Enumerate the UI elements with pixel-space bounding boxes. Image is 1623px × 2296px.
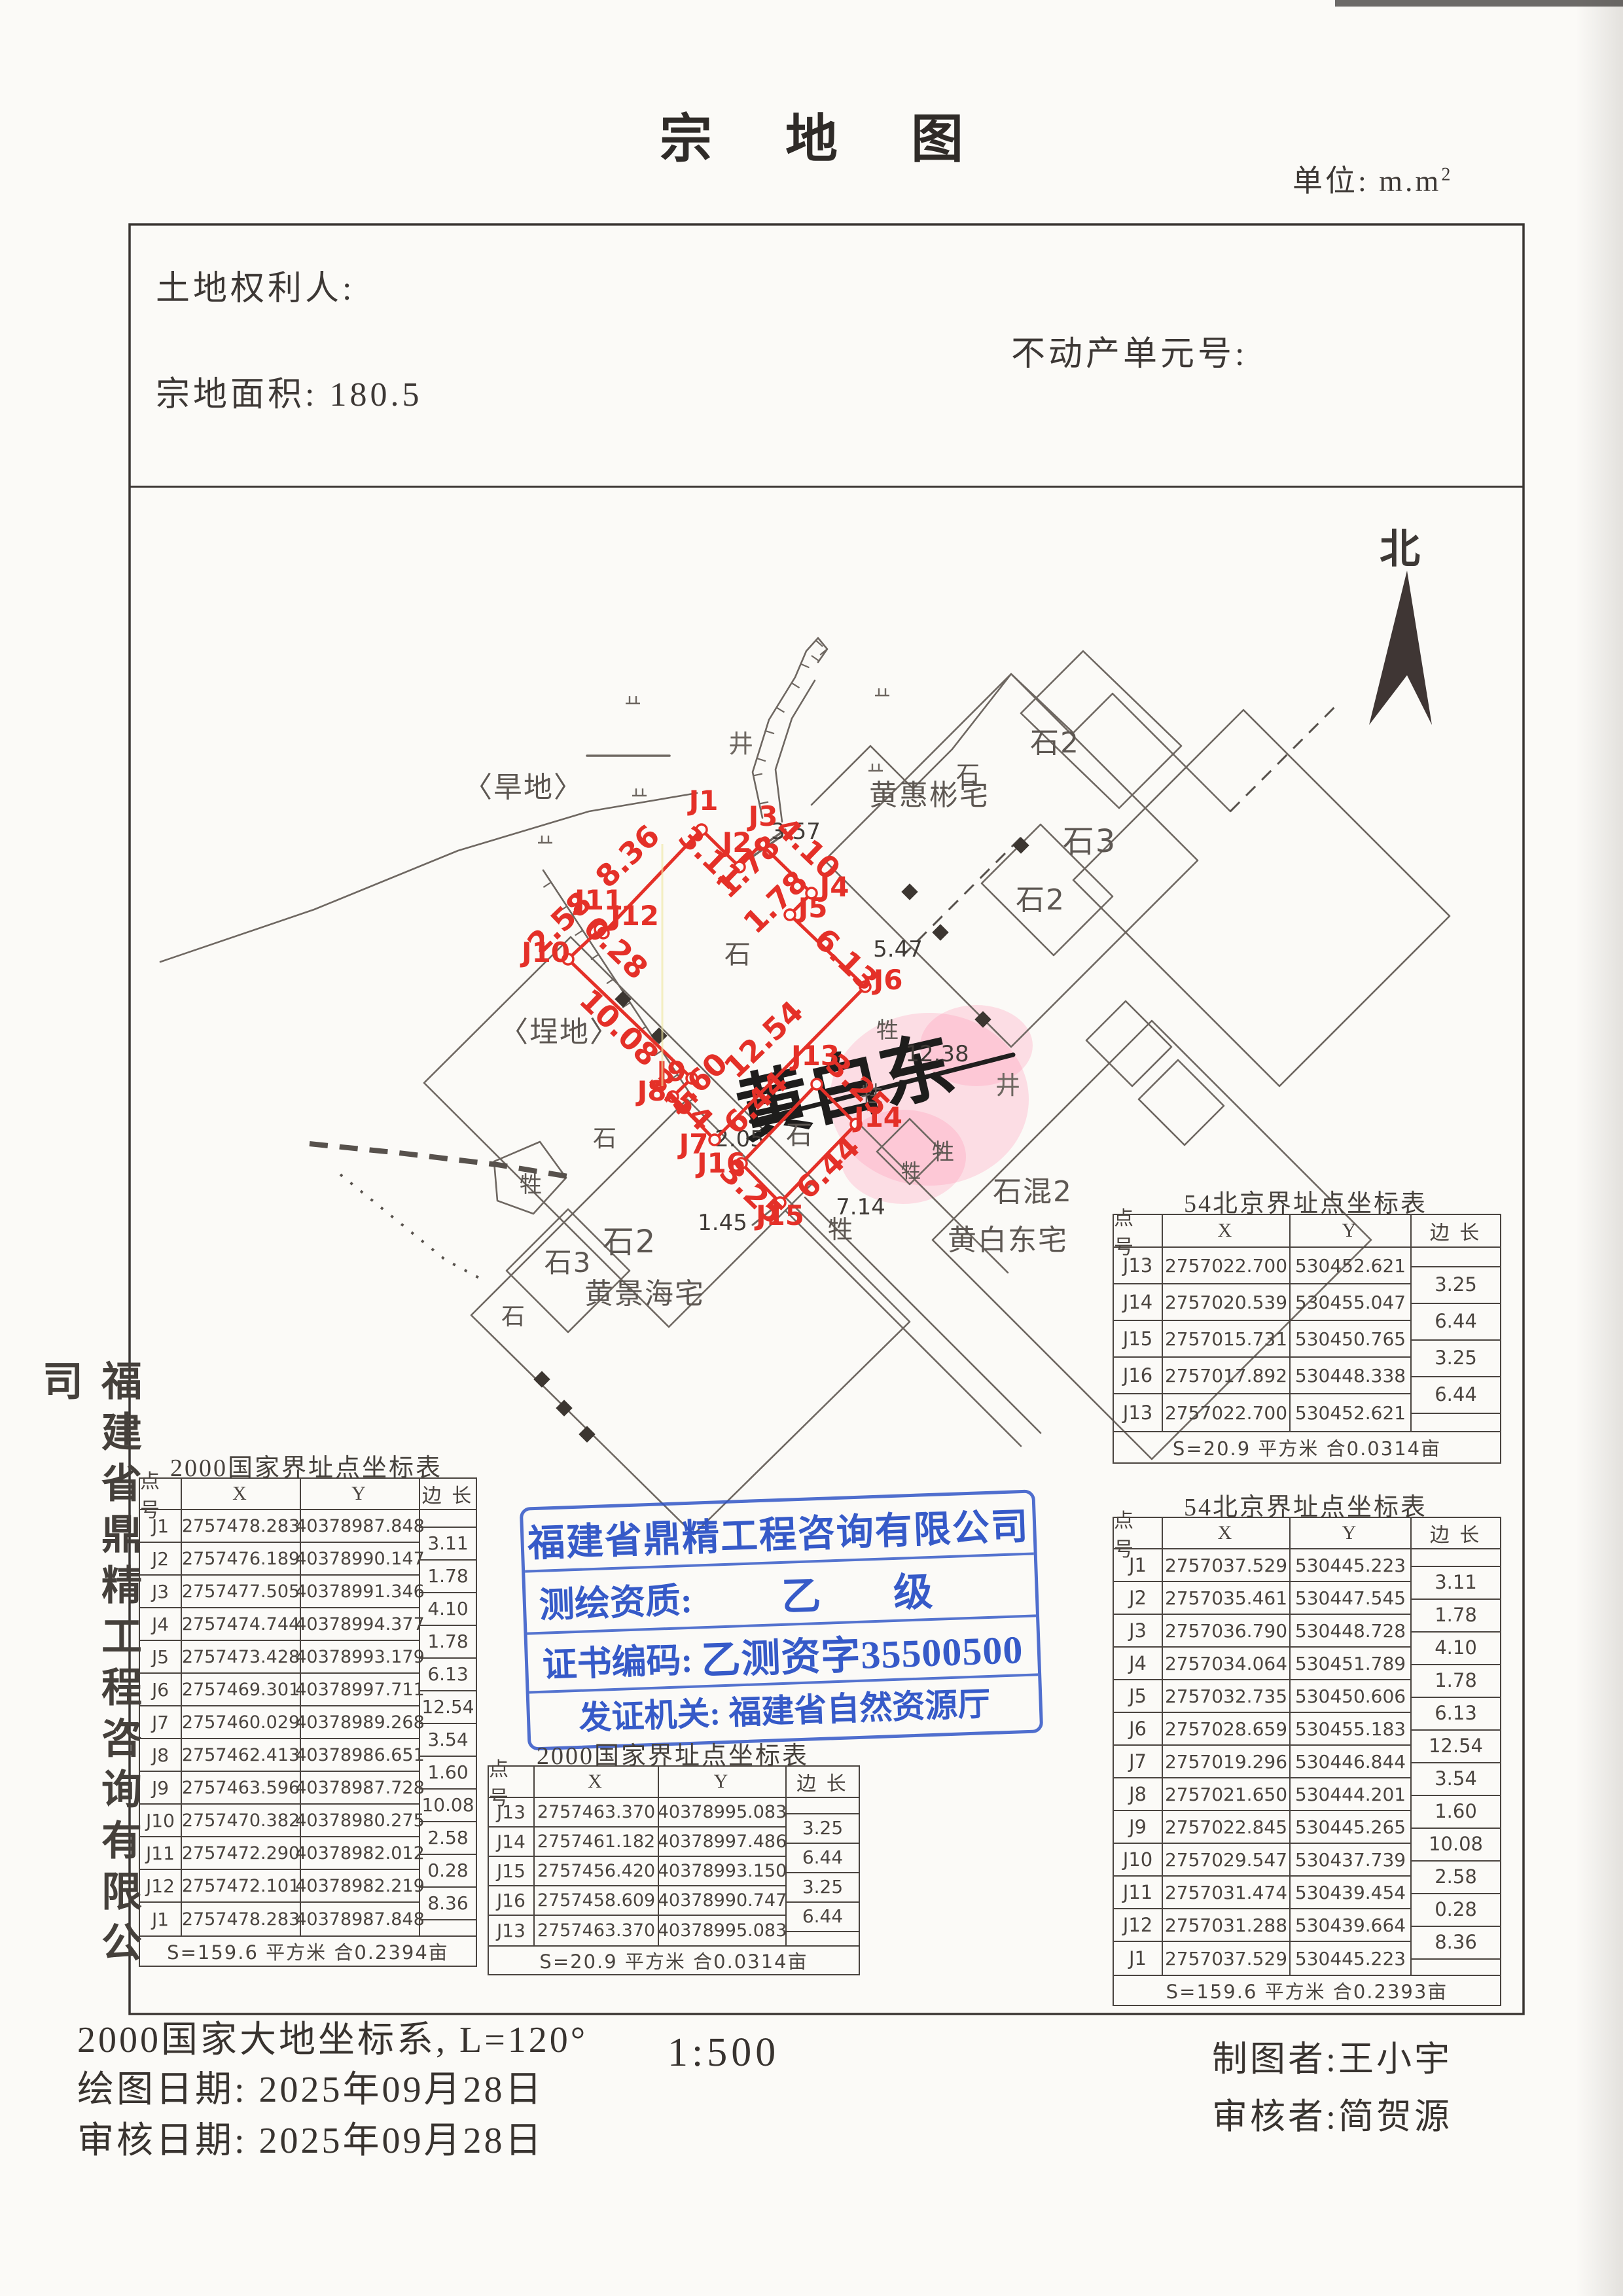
table-cell: J1: [1114, 1942, 1163, 1975]
dashed-path: [1230, 707, 1335, 811]
well-symbol: 井: [995, 1071, 1020, 1100]
table-header-cell: 边 长: [787, 1767, 859, 1798]
table-cell: 530445.265: [1291, 1811, 1412, 1844]
table-cell: 2757028.659: [1163, 1713, 1291, 1746]
edge-length-cell: 6.44: [1412, 1376, 1500, 1413]
table-cell: J5: [140, 1641, 182, 1674]
table-cell: 40378990.747: [659, 1886, 787, 1916]
table-cell: 530448.338: [1291, 1358, 1412, 1394]
table-cell: 530444.201: [1291, 1778, 1412, 1811]
table-cell: 2757022.845: [1163, 1811, 1291, 1844]
distance-annotation: 7.14: [836, 1194, 885, 1220]
table-cell: 2757034.064: [1163, 1648, 1291, 1680]
building-outline: [753, 638, 827, 818]
table-cell: 40378997.486: [659, 1828, 787, 1857]
map-label: 石: [593, 1125, 618, 1152]
table-cell: 2757461.182: [535, 1828, 659, 1857]
edge-length-cell: 0.28: [420, 1854, 476, 1886]
table-header-cell: 边 长: [1412, 1518, 1500, 1549]
table-cell: J2: [140, 1543, 182, 1576]
hatch-tick: [792, 683, 800, 688]
edge-length-divider: [1412, 1958, 1500, 1960]
hatch-tick: [766, 731, 774, 733]
table-cell: J14: [1114, 1284, 1163, 1321]
footer-crs: 2000国家大地坐标系, L=120°: [77, 2010, 588, 2063]
map-label: 石3: [544, 1246, 592, 1279]
pole-diamond-mark: [932, 924, 948, 940]
building-outline: [1139, 1060, 1224, 1145]
map-label: 石2: [1030, 726, 1080, 760]
table-cell: J8: [1114, 1778, 1163, 1811]
hatch-tick: [811, 656, 819, 661]
map-label: 牲: [901, 1160, 922, 1183]
table-cell: 530452.621: [1291, 1248, 1412, 1284]
building-outline: [776, 680, 815, 822]
table-header-cell: 边 长: [420, 1479, 476, 1510]
table-cell: J2: [1114, 1582, 1163, 1615]
edge-length-cell: 3.11: [420, 1527, 476, 1559]
text-fragment: 测绘资质:: [538, 1571, 693, 1628]
hatch-tick: [607, 978, 615, 983]
table-cell: 40378997.711: [301, 1674, 420, 1706]
table-cell: J4: [140, 1608, 182, 1641]
scanned-parcel-map-page: 井井黄白东〈旱地〉〈埕地〉石黄惠彬宅石2石3石2石石石石2石3黄景海宅石石混2黄…: [0, 0, 1623, 2296]
table-cell: 40378982.219: [301, 1870, 420, 1903]
table-cell: J12: [140, 1870, 182, 1903]
table-cell: 2757021.650: [1163, 1778, 1291, 1811]
edge-length-cell: 1.60: [420, 1756, 476, 1788]
table-header-cell: Y: [659, 1767, 787, 1798]
table-header-cell: Y: [301, 1479, 420, 1510]
parcel-edge-length: 8.36: [588, 818, 666, 895]
table-cell: J15: [1114, 1321, 1163, 1358]
table-cell: 2757035.461: [1163, 1582, 1291, 1615]
table-cell: 530452.621: [1291, 1394, 1412, 1431]
table-cell: 40378987.728: [301, 1772, 420, 1805]
unit-note: 单位: m.m2: [1293, 157, 1453, 200]
table-header-cell: Y: [1291, 1215, 1412, 1248]
table-cell: J7: [140, 1706, 182, 1739]
map-label: 石: [786, 1120, 813, 1150]
boundary-point-marker: [811, 1079, 822, 1089]
table-cell: J15: [489, 1857, 535, 1886]
table-cell: J9: [1114, 1811, 1163, 1844]
table-cell: 2757458.609: [535, 1886, 659, 1916]
text-fragment: 乙测资字35500500: [700, 1617, 1024, 1686]
table-header-cell: 点 号: [1114, 1518, 1163, 1549]
table-cell: J6: [140, 1674, 182, 1706]
table-cell: J13: [1114, 1394, 1163, 1431]
table-cell: 40378993.150: [659, 1857, 787, 1886]
edge-length-cell: 2.58: [420, 1821, 476, 1854]
map-label: 石2: [603, 1224, 657, 1260]
table-cell: J3: [140, 1576, 182, 1608]
table-cell: J1: [140, 1510, 182, 1543]
table-cell: 2757469.301: [182, 1674, 301, 1706]
hatch-tick: [801, 664, 810, 667]
table-summary: S=159.6 平方米 合0.2394亩: [140, 1935, 476, 1966]
table-summary: S=159.6 平方米 合0.2393亩: [1114, 1975, 1500, 2005]
hatch-tick: [753, 774, 762, 776]
edge-length-cell: 1.78: [1412, 1664, 1500, 1697]
edge-length-cell: 3.25: [1412, 1266, 1500, 1303]
text-fragment: 2: [1441, 165, 1453, 185]
edge-length-cell: 6.44: [1412, 1303, 1500, 1339]
building-outline: [1073, 710, 1450, 1086]
table-cell: J9: [140, 1772, 182, 1805]
table-cell: 40378987.848: [301, 1510, 420, 1543]
table-header-cell: X: [535, 1767, 659, 1798]
hatch-tick: [777, 707, 785, 712]
table-t2000_main: 点 号XY边 长J12757478.28340378987.848J227574…: [139, 1477, 477, 1967]
table-cell: J10: [1114, 1844, 1163, 1877]
edge-length-cell: 1.78: [420, 1625, 476, 1657]
table-cell: 2757456.420: [535, 1857, 659, 1886]
table-cell: 2757470.382: [182, 1805, 301, 1837]
table-cell: 530445.223: [1291, 1942, 1412, 1975]
table-cell: 2757037.529: [1163, 1549, 1291, 1582]
table-cell: 2757031.288: [1163, 1909, 1291, 1942]
table-header-cell: 点 号: [489, 1767, 535, 1798]
ground-symbol: [632, 788, 647, 796]
land-owner-label: 土地权利人:: [156, 260, 355, 309]
text-fragment: 单位: m.m: [1293, 164, 1441, 198]
table-cell: 2757029.547: [1163, 1844, 1291, 1877]
table-cell: 2757473.428: [182, 1641, 301, 1674]
table-cell: 40378995.083: [659, 1798, 787, 1828]
table-cell: 2757037.529: [1163, 1942, 1291, 1975]
table-header-cell: 边 长: [1412, 1215, 1500, 1248]
table-cell: J10: [140, 1805, 182, 1837]
table-cell: 2757460.029: [182, 1706, 301, 1739]
table-header-cell: 点 号: [1114, 1215, 1163, 1248]
table-cell: 2757463.370: [535, 1798, 659, 1828]
table-header-cell: X: [1163, 1518, 1291, 1549]
edge-length-cell: 12.54: [1412, 1729, 1500, 1762]
pole-diamond-mark: [533, 1371, 550, 1387]
table-cell: J13: [1114, 1248, 1163, 1284]
well-symbol: 井: [728, 730, 753, 758]
edge-length-cell: 3.54: [420, 1723, 476, 1756]
table-cell: 2757022.700: [1163, 1248, 1291, 1284]
edge-length-cell: 4.10: [420, 1592, 476, 1625]
table-cell: 40378987.848: [301, 1903, 420, 1935]
table-cell: 530455.183: [1291, 1713, 1412, 1746]
edge-length-cell: 0.28: [1412, 1893, 1500, 1926]
table-header-cell: X: [182, 1479, 301, 1510]
edge-length-cell: 12.54: [420, 1690, 476, 1723]
text-fragment: 宗地面积:: [156, 376, 317, 414]
map-label: 〈旱地〉: [463, 771, 584, 804]
pole-diamond-mark: [556, 1400, 572, 1416]
parcel-area-value: 180.5: [329, 376, 422, 414]
table-cell: 530455.047: [1291, 1284, 1412, 1321]
edge-length-cell: 4.10: [1412, 1631, 1500, 1664]
distance-annotation: 1.45: [698, 1210, 747, 1236]
table-cell: 530437.739: [1291, 1844, 1412, 1877]
table-cell: 530446.844: [1291, 1746, 1412, 1778]
table-cell: 2757022.700: [1163, 1394, 1291, 1431]
parcel-area: 宗地面积: 180.5: [156, 366, 422, 415]
table-cell: J16: [489, 1886, 535, 1916]
table-t54_sub: 点 号XY边 长J132757022.700530452.621J1427570…: [1113, 1214, 1501, 1464]
table-cell: 2757478.283: [182, 1903, 301, 1935]
table-cell: J6: [1114, 1713, 1163, 1746]
table-cell: 40378990.147: [301, 1543, 420, 1576]
table-cell: J13: [489, 1916, 535, 1945]
table-cell: 40378993.179: [301, 1641, 420, 1674]
edge-length-cell: 1.78: [1412, 1598, 1500, 1631]
table-cell: 530450.765: [1291, 1321, 1412, 1358]
map-scale: 1:500: [668, 2030, 779, 2076]
table-cell: 530439.454: [1291, 1877, 1412, 1909]
edge-length-cell: 10.08: [1412, 1828, 1500, 1860]
edge-length-cell: 8.36: [420, 1886, 476, 1919]
company-name-vertical: 福建省鼎精工程咨询有限公司: [29, 1360, 147, 2007]
table-cell: 2757463.370: [535, 1916, 659, 1945]
surveyor-stamp: 福建省鼎精工程咨询有限公司 测绘资质:乙 级 证书编码: 乙测资字3550050…: [520, 1489, 1044, 1750]
edge-length-divider: [1412, 1413, 1500, 1414]
table-cell: J14: [489, 1828, 535, 1857]
edge-length-divider: [787, 1931, 859, 1932]
table-cell: 2757476.189: [182, 1543, 301, 1576]
footer-reviewer: 审核者:简贺源: [1212, 2087, 1452, 2139]
estate-unit-label: 不动产单元号:: [1011, 326, 1247, 375]
table-cell: 530439.664: [1291, 1909, 1412, 1942]
table-cell: 2757462.413: [182, 1739, 301, 1772]
table-cell: 40378994.377: [301, 1608, 420, 1641]
ground-symbol: [868, 764, 883, 771]
pole-diamond-mark: [1012, 837, 1029, 853]
table-cell: 2757036.790: [1163, 1615, 1291, 1648]
table-summary: S=20.9 平方米 合0.0314亩: [489, 1945, 859, 1974]
table-cell: J8: [140, 1739, 182, 1772]
edge-length-cell: 3.54: [1412, 1762, 1500, 1795]
edge-length-cell: 1.78: [420, 1559, 476, 1592]
distance-annotation: 5.47: [873, 936, 923, 963]
table-cell: 2757020.539: [1163, 1284, 1291, 1321]
table-cell: J16: [1114, 1358, 1163, 1394]
north-label: 北: [1380, 516, 1421, 574]
hatch-tick: [757, 758, 766, 761]
pole-diamond-mark: [579, 1426, 595, 1442]
table-cell: 2757015.731: [1163, 1321, 1291, 1358]
table-cell: 2757463.596: [182, 1772, 301, 1805]
edge-length-cell: 2.58: [1412, 1860, 1500, 1893]
map-label: 石2: [1016, 883, 1065, 917]
table-cell: 530451.789: [1291, 1648, 1412, 1680]
table-cell: J11: [140, 1837, 182, 1870]
ground-symbol: [626, 696, 640, 703]
boundary-point-marker: [709, 1135, 720, 1145]
table-header-cell: X: [1163, 1215, 1291, 1248]
edge-length-divider: [420, 1919, 476, 1920]
dashed-path: [340, 1174, 488, 1282]
table-t54_main: 点 号XY边 长J12757037.529530445.223J22757035…: [1113, 1517, 1501, 2006]
table-cell: 2757031.474: [1163, 1877, 1291, 1909]
edge-length-cell: 6.44: [787, 1901, 859, 1931]
footer-drafter: 制图者:王小宇: [1212, 2030, 1452, 2081]
distance-annotation: 12.38: [905, 1041, 969, 1067]
edge-length-cell: 3.25: [787, 1872, 859, 1901]
boundary-point-label: J1: [687, 785, 719, 817]
edge-length-cell: 6.13: [1412, 1697, 1500, 1729]
table-cell: 2757472.101: [182, 1870, 301, 1903]
edge-length-cell: 10.08: [420, 1788, 476, 1821]
map-label: 黄白东宅: [948, 1224, 1068, 1257]
table-cell: 40378989.268: [301, 1706, 420, 1739]
table-cell: 2757032.735: [1163, 1680, 1291, 1713]
table-cell: 2757017.892: [1163, 1358, 1291, 1394]
text-fragment: 乙 级: [691, 1557, 1023, 1625]
ground-symbol: [538, 836, 552, 843]
table-cell: J5: [1114, 1680, 1163, 1713]
table-cell: 40378991.346: [301, 1576, 420, 1608]
table-cell: 2757474.744: [182, 1608, 301, 1641]
table-cell: J12: [1114, 1909, 1163, 1942]
map-label: 牲: [932, 1139, 955, 1165]
map-label: 牲: [520, 1172, 543, 1198]
table-cell: J1: [1114, 1549, 1163, 1582]
table-cell: J3: [1114, 1615, 1163, 1648]
edge-length-cell: 6.13: [420, 1657, 476, 1690]
edge-length-cell: 1.60: [1412, 1795, 1500, 1828]
table-t2000_sub: 点 号XY边 长J132757463.37040378995.083J14275…: [488, 1765, 860, 1975]
table-header-cell: Y: [1291, 1518, 1412, 1549]
boundary-point-label: J3: [747, 800, 778, 832]
table-cell: J13: [489, 1798, 535, 1828]
table-cell: 2757477.505: [182, 1576, 301, 1608]
edge-length-cell: 3.25: [1412, 1339, 1500, 1376]
table-cell: 2757472.290: [182, 1837, 301, 1870]
footer-review-date: 审核日期: 2025年09月28日: [77, 2111, 544, 2164]
table-cell: J7: [1114, 1746, 1163, 1778]
table-summary: S=20.9 平方米 合0.0314亩: [1114, 1431, 1500, 1462]
map-label: 牲: [876, 1017, 900, 1044]
table-cell: 2757019.296: [1163, 1746, 1291, 1778]
ground-symbol: [875, 688, 889, 696]
text-fragment: 证书编码:: [541, 1633, 693, 1687]
table-cell: 530448.728: [1291, 1615, 1412, 1648]
map-label: 黄景海宅: [584, 1277, 705, 1311]
edge-length-cell: 3.11: [1412, 1566, 1500, 1598]
table-cell: 40378982.012: [301, 1837, 420, 1870]
table-cell: 40378995.083: [659, 1916, 787, 1945]
table-cell: 2757478.283: [182, 1510, 301, 1543]
table-cell: 530445.223: [1291, 1549, 1412, 1582]
edge-length-cell: 6.44: [787, 1843, 859, 1872]
hatch-tick: [543, 882, 551, 887]
map-label: 石混2: [993, 1175, 1073, 1209]
map-label: 石: [724, 940, 752, 970]
table-cell: J11: [1114, 1877, 1163, 1909]
table-cell: 40378986.651: [301, 1739, 420, 1772]
north-arrow-icon: [1369, 571, 1432, 725]
hatch-tick: [591, 955, 599, 960]
scan-edge-shadow: [1576, 0, 1623, 2296]
pole-diamond-mark: [901, 883, 918, 900]
map-label: 石3: [1063, 823, 1117, 860]
table-header-cell: 点 号: [140, 1479, 182, 1510]
edge-length-cell: 8.36: [1412, 1926, 1500, 1958]
edge-length-cell: 3.25: [787, 1813, 859, 1843]
map-label: 石: [501, 1303, 526, 1330]
table-cell: J4: [1114, 1648, 1163, 1680]
scan-edge-artifact: [1335, 0, 1623, 7]
table-cell: 530447.545: [1291, 1582, 1412, 1615]
table-cell: J1: [140, 1903, 182, 1935]
map-label: 黄惠彬宅: [869, 779, 990, 812]
table-cell: 530450.606: [1291, 1680, 1412, 1713]
footer-draw-date: 绘图日期: 2025年09月28日: [77, 2060, 544, 2113]
table-cell: 40378980.275: [301, 1805, 420, 1837]
